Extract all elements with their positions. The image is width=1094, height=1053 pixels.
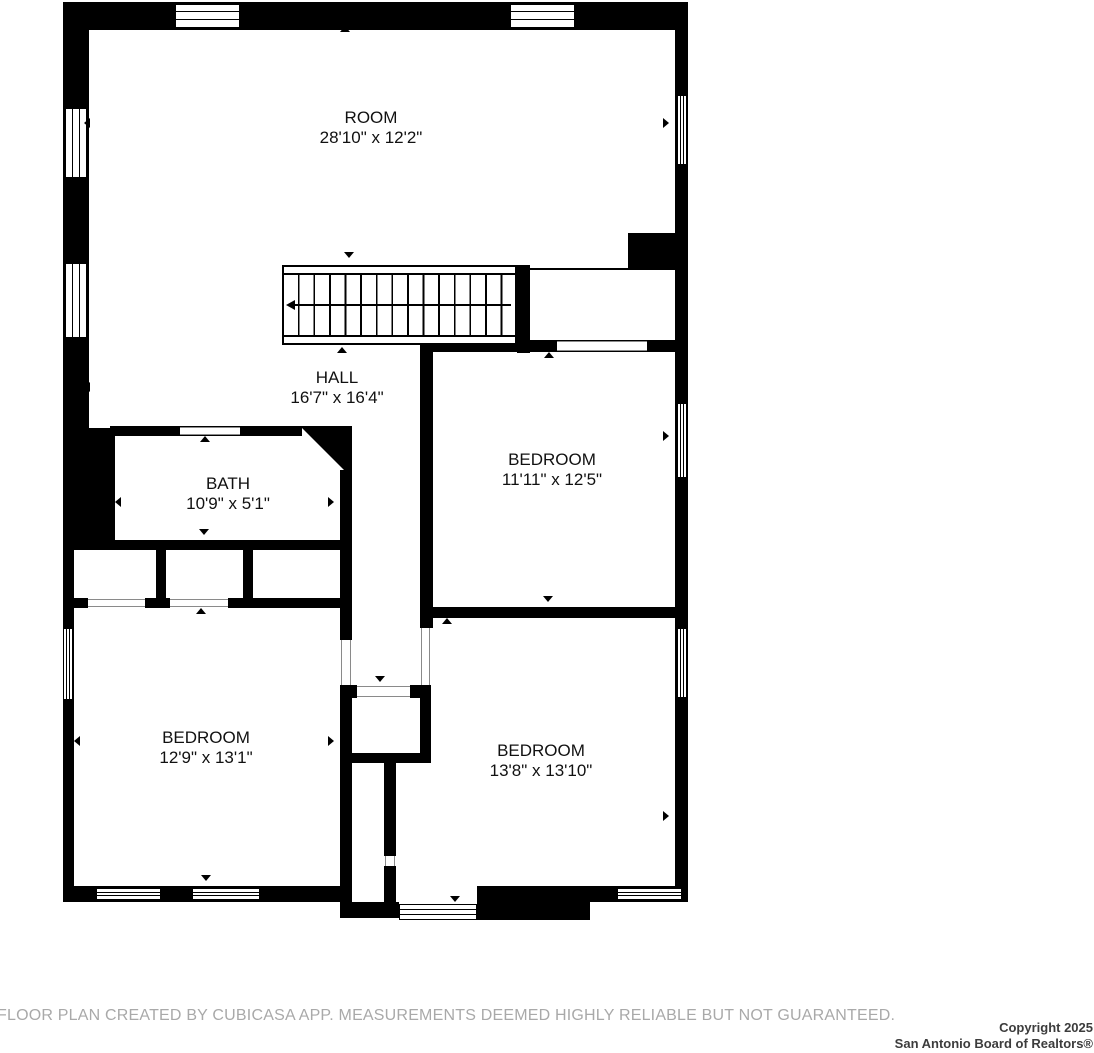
room-dims: 10'9" x 5'1" [186,494,270,514]
room-dims: 28'10" x 12'2" [320,128,423,148]
wall-closet-row-1 [63,598,88,608]
window-leftbed-1 [96,888,161,900]
window-leftbed-2 [192,888,260,900]
marker-icon [450,896,460,902]
marker-icon [337,347,347,353]
wall-corridor-bottom [340,902,399,918]
room-name: BEDROOM [502,450,602,470]
marker-icon [201,875,211,881]
marker-icon [328,736,334,746]
room-name: ROOM [320,108,423,128]
wall-closet-stub-1 [156,550,166,600]
wall-right-bump [628,233,688,270]
room-name: BATH [186,474,270,494]
window-top-1 [175,4,240,28]
room-dims: 16'7" x 16'4" [290,388,383,408]
window-right-3 [677,628,687,698]
room-label-bedroom-bottom-left: BEDROOM 12'9" x 13'1" [159,728,252,768]
window-left-3 [63,628,73,700]
wall-bedroom-divider [420,607,688,618]
marker-icon [328,497,334,507]
window-left-2 [65,263,87,338]
stair-direction-arrow-icon [286,300,295,310]
room-label-bath: BATH 10'9" x 5'1" [186,474,270,514]
marker-icon [543,596,553,602]
wall-top [63,2,688,30]
marker-icon [663,431,669,441]
door-opening-midcloset [357,686,410,697]
wall-closet-row-3 [228,598,340,608]
door-opening-closet-2 [170,599,228,607]
wall-bedroom1-left [420,340,433,628]
room-name: HALL [290,368,383,388]
copyright-line2: San Antonio Board of Realtors® [895,1036,1093,1052]
marker-icon [196,608,206,614]
footer-disclaimer: FLOOR PLAN CREATED BY CUBICASA APP. MEAS… [0,1007,895,1025]
room-dims: 12'9" x 13'1" [159,748,252,768]
copyright-line1: Copyright 2025 [895,1020,1093,1036]
marker-icon [84,118,90,128]
marker-icon [375,676,385,682]
marker-icon [344,252,354,258]
marker-icon [199,529,209,535]
door-opening-leftbed [341,640,351,685]
marker-icon [663,811,669,821]
room-dims: 13'8" x 13'10" [490,761,593,781]
wall-hall-right-b [340,685,352,918]
window-right-1 [677,95,687,165]
wall-hall-right-a [340,470,352,640]
marker-icon [84,382,90,392]
stair-direction-line [292,304,511,306]
window-top-2 [510,4,575,28]
wall-midcloset-top-1 [341,685,357,698]
window-right-2 [677,403,687,478]
door-opening-bedroom2 [421,628,430,685]
wall-midcloset-top-2 [410,685,431,698]
room-dims: 11'11" x 12'5" [502,470,602,490]
room-label-room: ROOM 28'10" x 12'2" [320,108,423,148]
wall-bath-bottom [70,540,340,550]
wall-corridor-stub-1 [384,763,396,856]
copyright-notice: Copyright 2025 San Antonio Board of Real… [895,1020,1093,1052]
marker-icon [200,436,210,442]
marker-icon [544,352,554,358]
marker-icon [663,118,669,128]
room-label-bedroom-bottom-right: BEDROOM 13'8" x 13'10" [490,741,593,781]
floor-plan: ROOM 28'10" x 12'2" HALL 16'7" x 16'4" B… [0,0,1094,1053]
wall-left-upper [63,2,89,428]
door-opening-closet-1 [88,599,145,607]
door-opening-bath [180,427,240,435]
wall-midcloset-bottom [341,753,431,763]
wall-bottom-block [477,886,590,920]
door-bottom-entry [399,904,477,920]
closet-top-line [530,268,675,270]
door-opening-corridor [385,856,395,866]
wall-closet-stub-2 [243,550,253,600]
wall-closet-row-2 [145,598,170,608]
marker-icon [340,26,350,32]
window-rightbed [617,888,682,900]
room-name: BEDROOM [490,741,593,761]
marker-icon [115,497,121,507]
door-opening-bedroom1-closet [557,341,647,351]
room-name: BEDROOM [159,728,252,748]
staircase [282,265,517,345]
wall-left-mass [63,428,115,545]
marker-icon [442,618,452,624]
room-label-bedroom-right: BEDROOM 11'11" x 12'5" [502,450,602,490]
room-label-hall: HALL 16'7" x 16'4" [290,368,383,408]
marker-icon [74,736,80,746]
